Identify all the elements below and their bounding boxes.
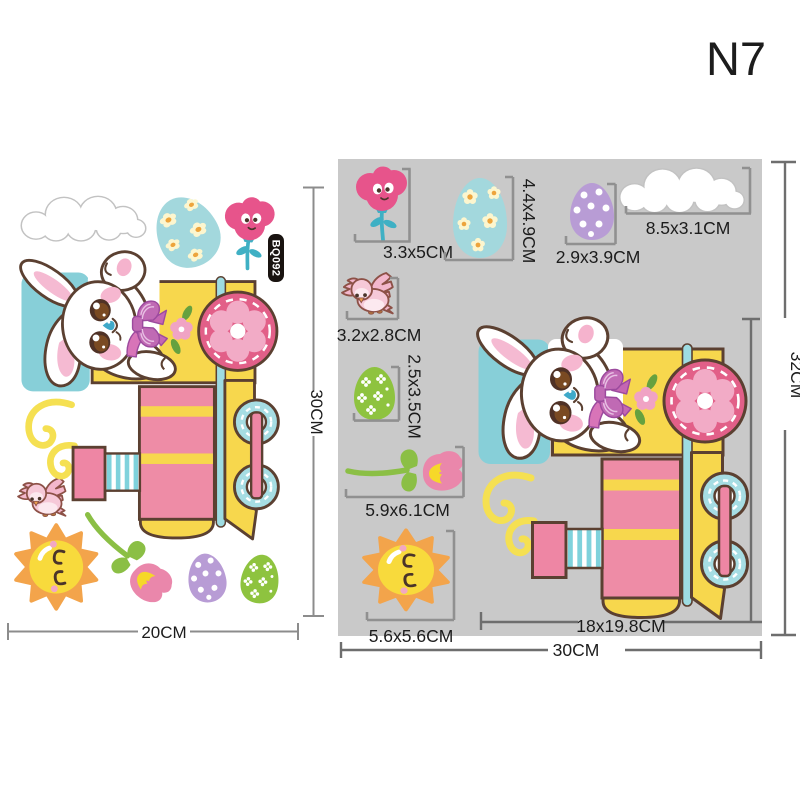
svg-text:BQ092: BQ092 (270, 240, 282, 277)
svg-text:2.5x3.5CM: 2.5x3.5CM (405, 354, 425, 439)
svg-text:2.9x3.9CM: 2.9x3.9CM (556, 247, 641, 267)
svg-text:32CM: 32CM (787, 352, 800, 399)
svg-text:5.6x5.6CM: 5.6x5.6CM (369, 626, 454, 646)
svg-text:3.2x2.8CM: 3.2x2.8CM (337, 325, 422, 345)
svg-text:20CM: 20CM (141, 623, 186, 642)
svg-text:N7: N7 (706, 32, 766, 85)
svg-text:3.3x5CM: 3.3x5CM (383, 242, 453, 262)
svg-text:8.5x3.1CM: 8.5x3.1CM (646, 218, 731, 238)
svg-text:30CM: 30CM (307, 389, 326, 434)
svg-text:30CM: 30CM (553, 640, 600, 660)
svg-text:5.9x6.1CM: 5.9x6.1CM (365, 500, 450, 520)
svg-text:4.4x4.9CM: 4.4x4.9CM (519, 179, 539, 264)
svg-text:18x19.8CM: 18x19.8CM (576, 616, 666, 636)
